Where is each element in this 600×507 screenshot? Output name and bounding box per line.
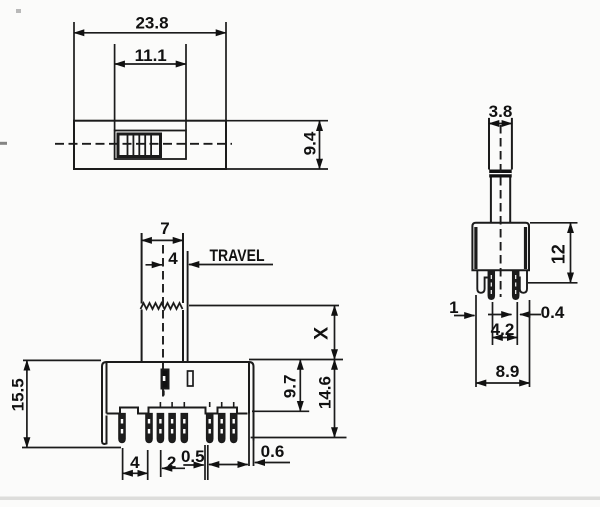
svg-text:0.5: 0.5 [181,447,205,466]
svg-text:X: X [310,327,332,340]
svg-text:2: 2 [167,453,176,472]
svg-text:1: 1 [449,298,458,317]
svg-text:7: 7 [160,219,169,238]
svg-text:15.5: 15.5 [8,378,27,411]
svg-text:11.1: 11.1 [135,46,167,65]
svg-text:4.2: 4.2 [491,320,515,339]
svg-text:8.9: 8.9 [496,362,520,381]
svg-text:4: 4 [168,249,178,268]
svg-text:12: 12 [548,244,568,264]
svg-text:0.6: 0.6 [261,442,285,461]
svg-text:14.6: 14.6 [315,376,334,409]
svg-text:0.4: 0.4 [541,303,565,322]
svg-text:9.7: 9.7 [280,375,299,399]
svg-text:3.8: 3.8 [489,102,513,121]
svg-text:4: 4 [130,453,140,472]
svg-text:9.4: 9.4 [300,131,319,155]
svg-text:23.8: 23.8 [135,14,168,33]
svg-text:TRAVEL: TRAVEL [210,247,265,265]
